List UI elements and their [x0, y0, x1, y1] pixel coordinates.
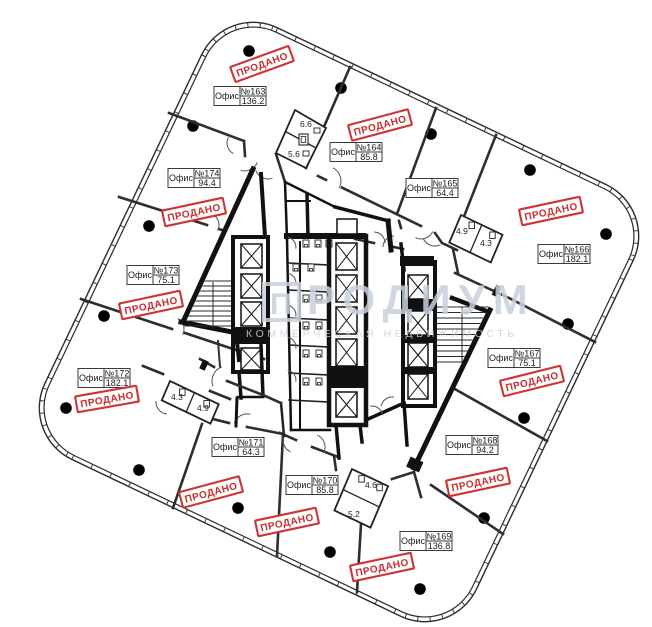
svg-text:№172: №172	[105, 369, 130, 379]
svg-text:4.3: 4.3	[171, 392, 183, 402]
svg-text:№170: №170	[313, 476, 338, 486]
svg-text:Офис: Офис	[213, 442, 237, 452]
svg-text:64.3: 64.3	[242, 447, 260, 457]
svg-text:Офис: Офис	[287, 480, 311, 490]
svg-text:5.2: 5.2	[348, 509, 360, 519]
svg-text:75.1: 75.1	[518, 358, 536, 368]
svg-text:136.2: 136.2	[242, 96, 265, 106]
svg-text:136.8: 136.8	[428, 541, 451, 551]
svg-text:№166: №166	[565, 245, 590, 255]
svg-text:Офис: Офис	[215, 91, 239, 101]
svg-text:182.1: 182.1	[566, 254, 589, 264]
svg-text:№163: №163	[241, 87, 266, 97]
svg-text:Офис: Офис	[128, 270, 152, 280]
svg-text:85.8: 85.8	[360, 152, 378, 162]
svg-text:Офис: Офис	[447, 440, 471, 450]
svg-text:5.6: 5.6	[288, 149, 300, 159]
svg-text:94.2: 94.2	[476, 445, 494, 455]
svg-text:П: П	[270, 288, 292, 321]
svg-text:№173: №173	[154, 266, 179, 276]
svg-text:94.4: 94.4	[198, 178, 216, 188]
svg-text:4.6: 4.6	[365, 480, 377, 490]
svg-text:4.3: 4.3	[480, 238, 492, 248]
svg-text:№164: №164	[357, 143, 382, 153]
svg-text:№165: №165	[433, 179, 458, 189]
svg-text:Офис: Офис	[331, 147, 355, 157]
svg-text:№171: №171	[239, 438, 264, 448]
svg-text:№169: №169	[427, 532, 452, 542]
svg-text:6.6: 6.6	[300, 119, 312, 129]
svg-text:Офис: Офис	[401, 536, 425, 546]
svg-text:№174: №174	[195, 169, 220, 179]
svg-text:КОММЕРЧЕСКАЯ НЕДВИЖИМОСТЬ: КОММЕРЧЕСКАЯ НЕДВИЖИМОСТЬ	[246, 328, 518, 340]
svg-text:Офис: Офис	[407, 183, 431, 193]
svg-text:Офис: Офис	[489, 353, 513, 363]
svg-text:64.4: 64.4	[436, 188, 454, 198]
svg-text:4.9: 4.9	[197, 403, 209, 413]
svg-text:РОДИУМ: РОДИУМ	[307, 276, 536, 323]
svg-text:4.9: 4.9	[456, 226, 468, 236]
svg-text:Офис: Офис	[79, 373, 103, 383]
svg-text:85.8: 85.8	[316, 485, 334, 495]
svg-text:Офис: Офис	[169, 173, 193, 183]
svg-text:Офис: Офис	[539, 249, 563, 259]
svg-text:75.1: 75.1	[157, 275, 175, 285]
svg-text:№168: №168	[473, 436, 498, 446]
svg-text:№167: №167	[515, 349, 540, 359]
